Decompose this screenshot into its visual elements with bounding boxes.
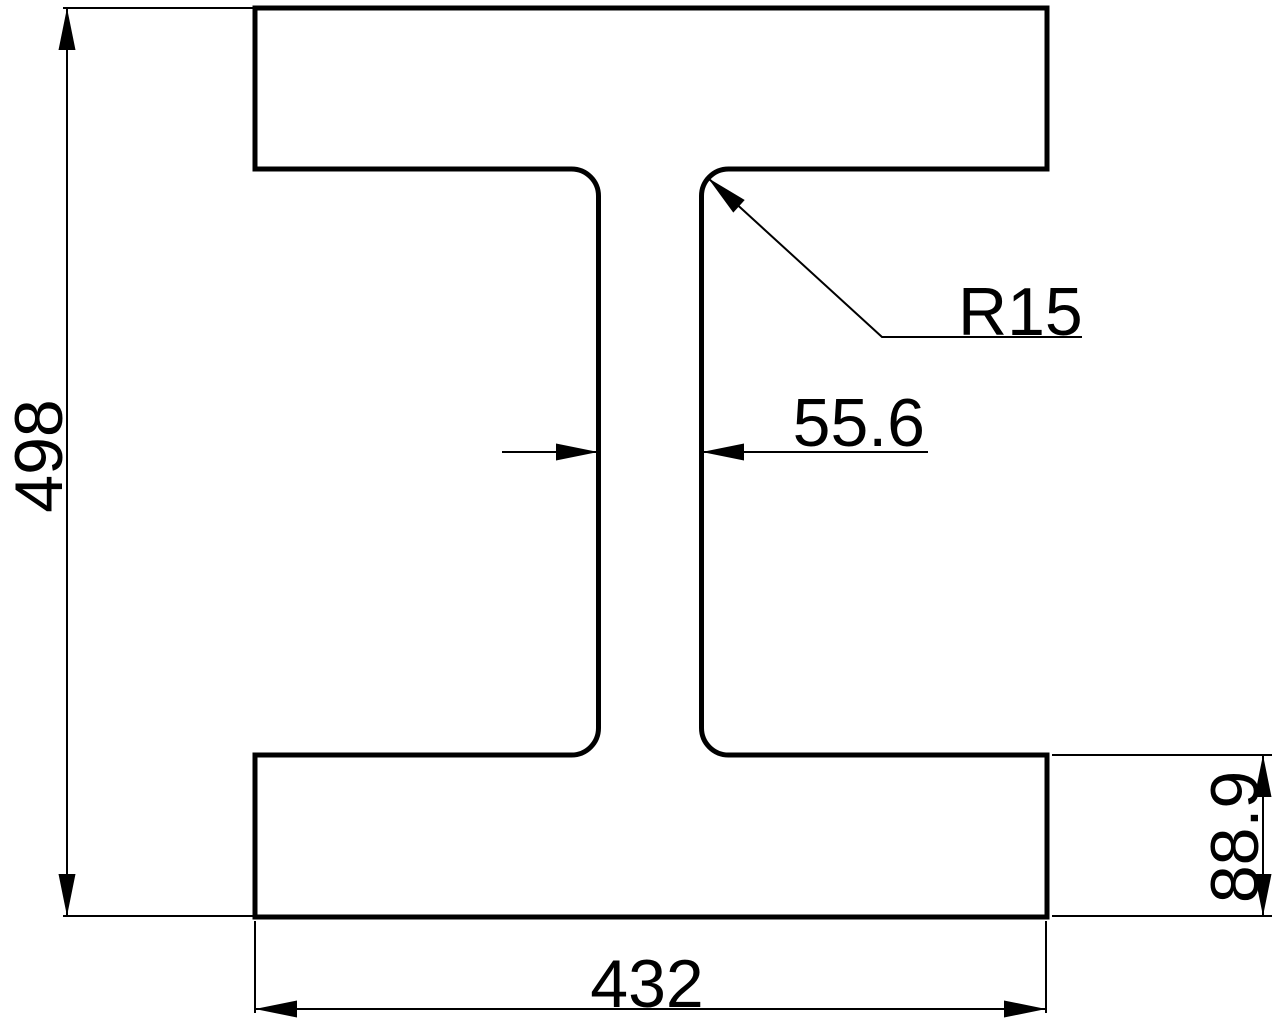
flange-width-label: 432 xyxy=(590,946,703,1022)
engineering-drawing: 498 R15 55.6 88.9 432 xyxy=(0,0,1280,1024)
web-thickness-label: 55.6 xyxy=(793,385,925,461)
radius-dimension-label: R15 xyxy=(958,274,1083,350)
flange-thickness-label: 88.9 xyxy=(1197,771,1273,903)
height-dimension-label: 498 xyxy=(1,399,77,512)
drawing-background xyxy=(0,0,1280,1024)
